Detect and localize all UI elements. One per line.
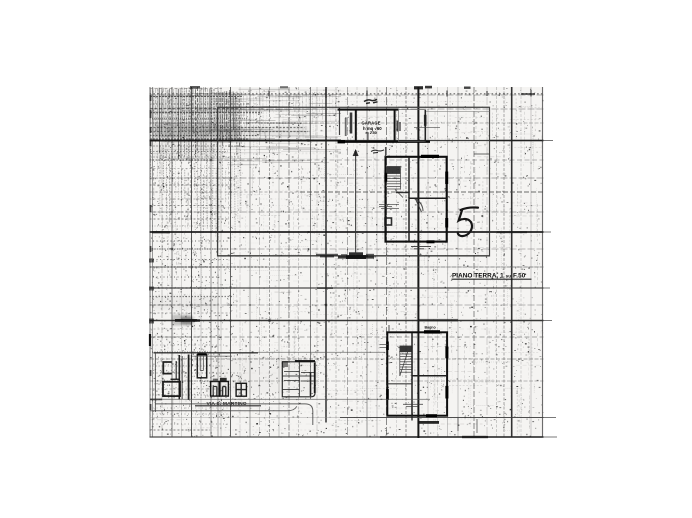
svg-text:Bagno: Bagno: [425, 326, 437, 330]
svg-text:m 2.50: m 2.50: [366, 131, 377, 135]
svg-text:PIANO TERRA, 1 su F.50: PIANO TERRA, 1 su F.50: [452, 273, 526, 280]
svg-text:GARAGE: GARAGE: [362, 121, 381, 126]
